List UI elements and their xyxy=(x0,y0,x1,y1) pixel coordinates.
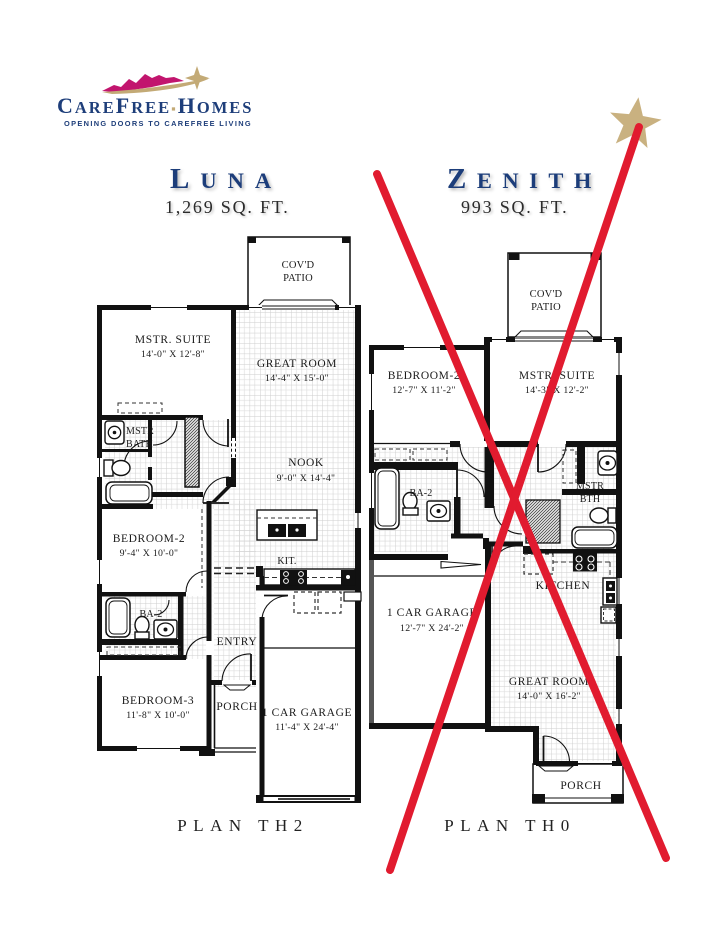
svg-text:COV'D: COV'D xyxy=(282,260,315,271)
svg-text:GREAT ROOM: GREAT ROOM xyxy=(509,676,589,688)
svg-text:BEDROOM-2: BEDROOM-2 xyxy=(388,370,461,382)
svg-text:CAREFREE▪HOMES: CAREFREE▪HOMES xyxy=(57,93,253,118)
svg-text:BEDROOM-3: BEDROOM-3 xyxy=(122,695,195,707)
svg-text:PORCH: PORCH xyxy=(560,780,601,792)
svg-text:BATH: BATH xyxy=(126,439,153,450)
svg-text:KIT.: KIT. xyxy=(277,556,296,567)
svg-text:1 CAR GARAGE: 1 CAR GARAGE xyxy=(262,707,352,719)
svg-text:BTH: BTH xyxy=(580,494,601,505)
svg-text:12'-7" X 11'-2": 12'-7" X 11'-2" xyxy=(392,385,456,396)
svg-text:11'-4" X 24'-4": 11'-4" X 24'-4" xyxy=(275,722,339,733)
svg-text:LUNA: LUNA xyxy=(170,163,282,195)
svg-text:ZENITH: ZENITH xyxy=(447,163,602,195)
svg-text:14'-0" X 16'-2": 14'-0" X 16'-2" xyxy=(517,691,581,702)
svg-text:OPENING DOORS TO CAREFREE LIVI: OPENING DOORS TO CAREFREE LIVING xyxy=(64,119,252,128)
svg-text:MSTR: MSTR xyxy=(576,481,604,492)
svg-text:14'-0" X 12'-8": 14'-0" X 12'-8" xyxy=(141,349,205,360)
svg-text:993 SQ. FT.: 993 SQ. FT. xyxy=(461,197,568,217)
svg-text:BEDROOM-2: BEDROOM-2 xyxy=(113,533,186,545)
svg-text:14'-3" X 12'-2": 14'-3" X 12'-2" xyxy=(525,385,589,396)
svg-text:PATIO: PATIO xyxy=(283,273,313,284)
svg-text:9'-4" X 10'-0": 9'-4" X 10'-0" xyxy=(120,548,179,559)
svg-text:BA-2: BA-2 xyxy=(139,609,162,620)
svg-text:PLAN TH0: PLAN TH0 xyxy=(444,816,576,835)
svg-text:MSTR: MSTR xyxy=(126,426,154,437)
svg-text:KITCHEN: KITCHEN xyxy=(536,580,591,592)
svg-text:14'-4" X 15'-0": 14'-4" X 15'-0" xyxy=(265,373,329,384)
svg-text:PORCH: PORCH xyxy=(216,701,257,713)
svg-text:ENTRY: ENTRY xyxy=(217,636,258,648)
svg-text:MSTR. SUITE: MSTR. SUITE xyxy=(135,334,211,346)
svg-text:PATIO: PATIO xyxy=(531,302,561,313)
svg-text:11'-8" X 10'-0": 11'-8" X 10'-0" xyxy=(126,710,190,721)
svg-text:1 CAR GARAGE: 1 CAR GARAGE xyxy=(387,607,477,619)
svg-text:PLAN TH2: PLAN TH2 xyxy=(177,816,309,835)
svg-text:BA-2: BA-2 xyxy=(409,488,432,499)
svg-text:12'-7" X 24'-2": 12'-7" X 24'-2" xyxy=(400,623,464,634)
svg-text:GREAT ROOM: GREAT ROOM xyxy=(257,358,337,370)
svg-text:9'-0" X 14'-4": 9'-0" X 14'-4" xyxy=(277,473,336,484)
svg-text:COV'D: COV'D xyxy=(530,289,563,300)
svg-text:1,269 SQ. FT.: 1,269 SQ. FT. xyxy=(165,197,290,217)
svg-text:NOOK: NOOK xyxy=(288,457,324,469)
